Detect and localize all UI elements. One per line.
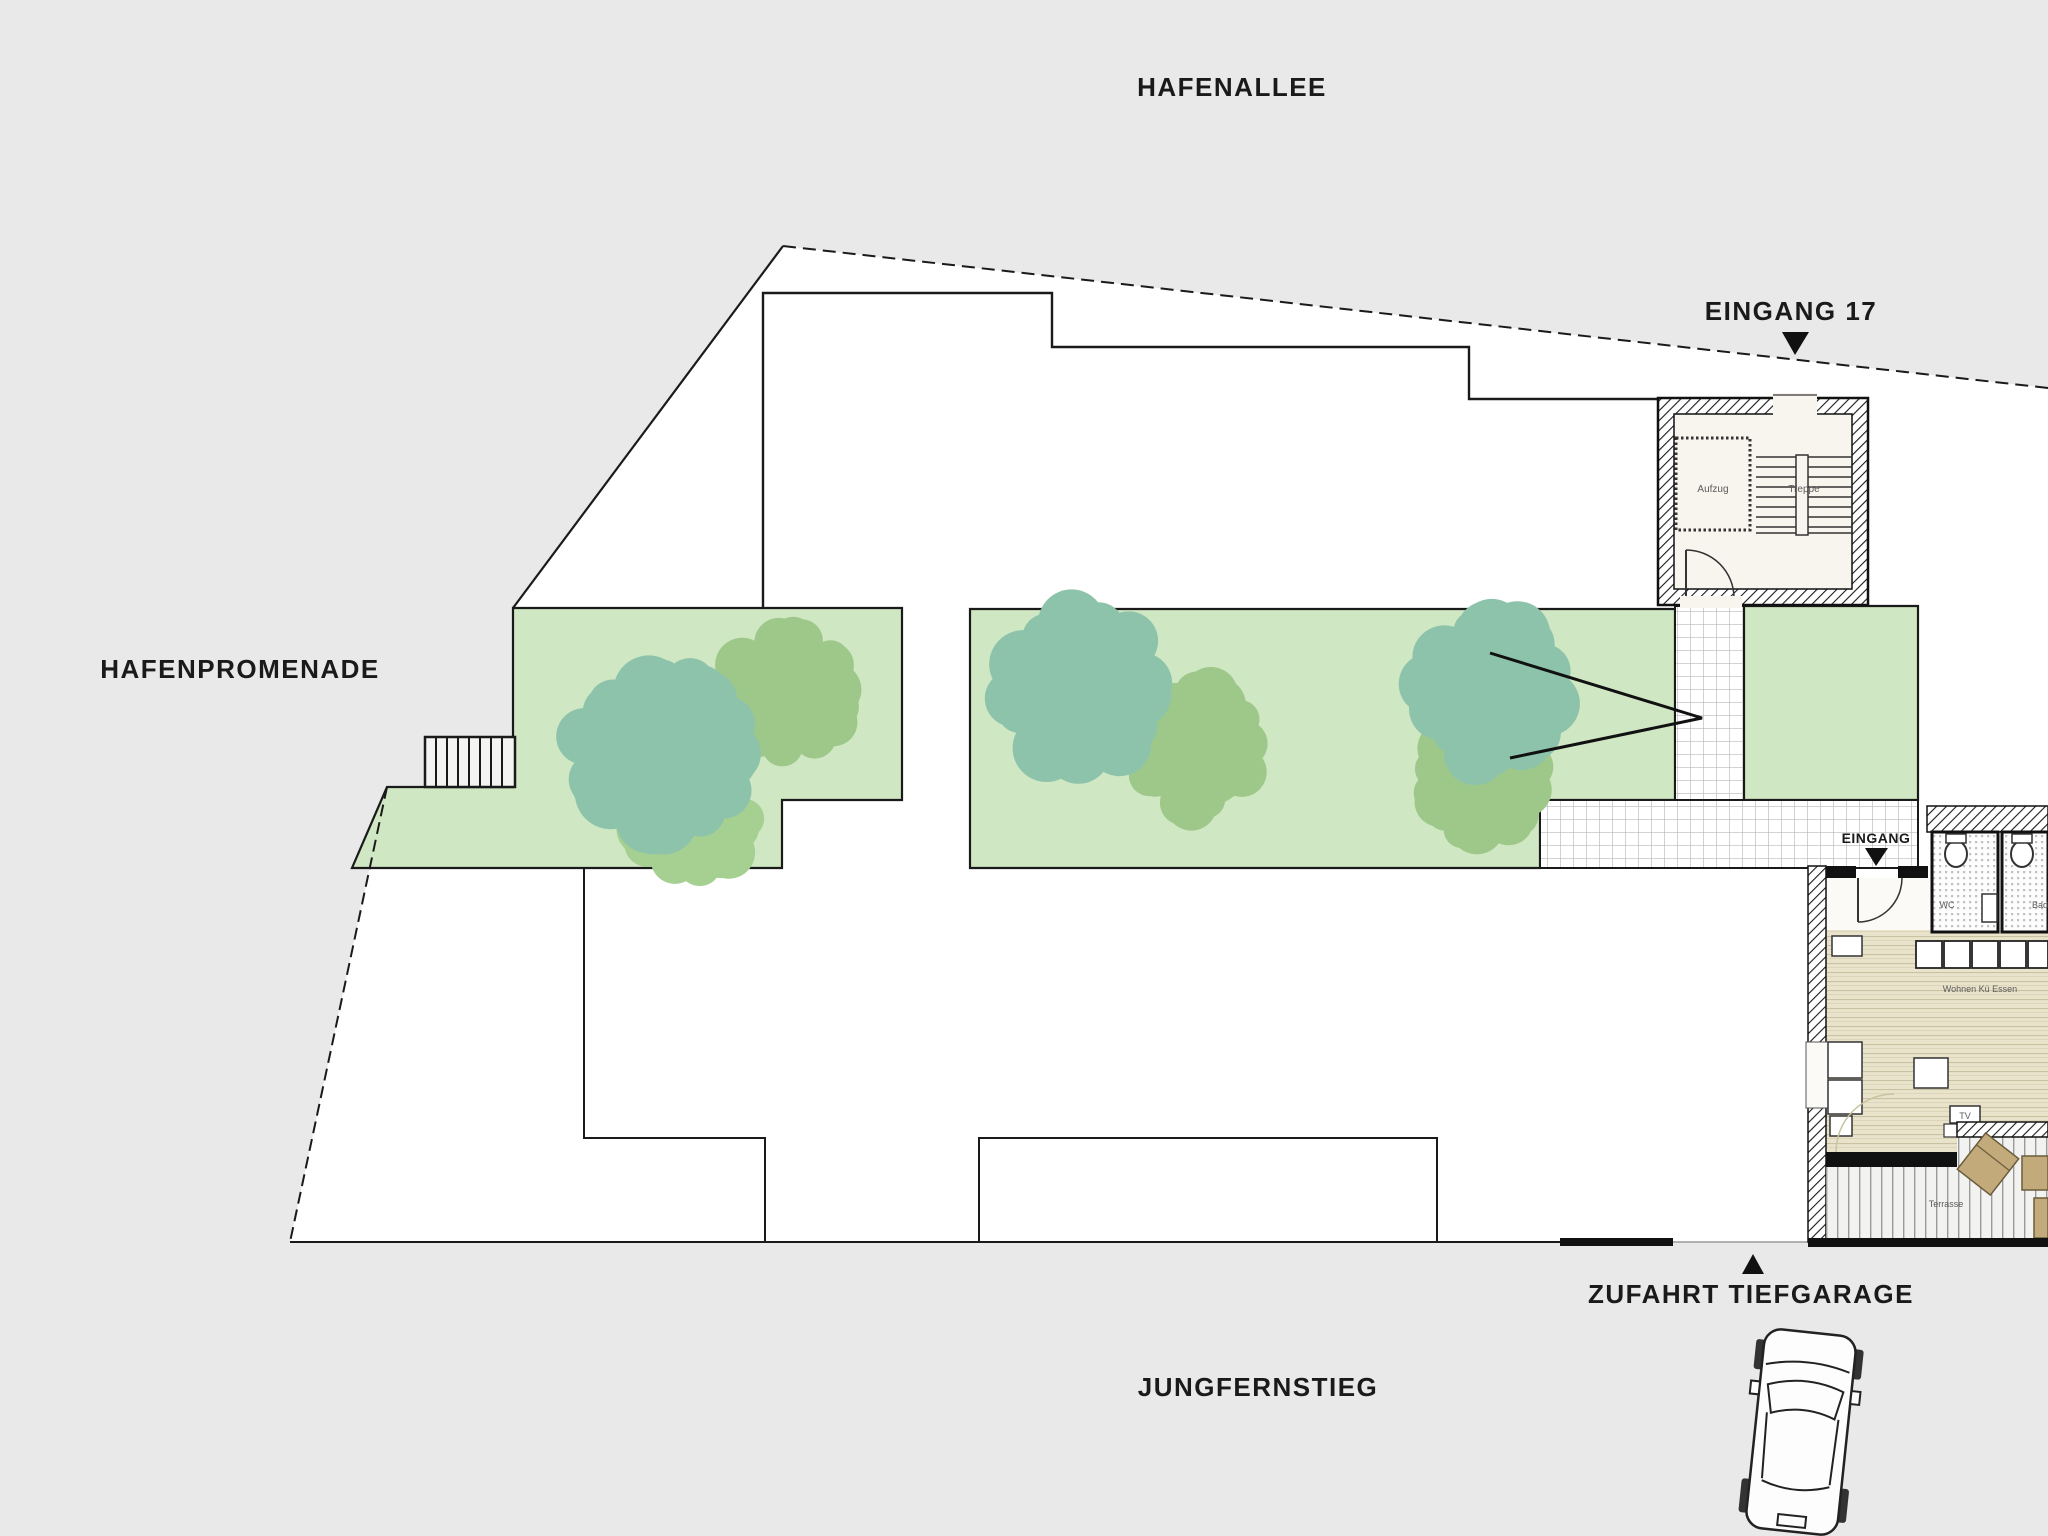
car-body — [1745, 1328, 1857, 1536]
street-label-jungfernstieg: JUNGFERNSTIEG — [1138, 1372, 1379, 1402]
terrace-side-wall — [1957, 1122, 2048, 1137]
bath-toilet — [2011, 841, 2033, 867]
entry-hall-floor — [1826, 878, 1930, 930]
wc-basin — [1982, 894, 1997, 922]
terrace-furniture-1 — [2022, 1156, 2048, 1190]
coffee-table — [1914, 1058, 1948, 1088]
west-wall-window — [1806, 1042, 1828, 1108]
stairwell-south-gap — [1680, 596, 1742, 608]
hall-closet — [1832, 936, 1862, 956]
tv-label: TV — [1959, 1111, 1971, 1121]
terrace-label: Terrasse — [1929, 1199, 1964, 1209]
street-label-hafenpromenade: HAFENPROMENADE — [100, 654, 380, 684]
apartment-unit: WC Bad Wohnen Kü Essen TV — [1806, 806, 2048, 1247]
elevator-label: Aufzug — [1697, 484, 1728, 495]
bath-label: Bad — [2032, 900, 2048, 910]
wc-toilet — [1945, 841, 1967, 867]
kitchen-cabinets — [1916, 941, 2048, 968]
apartment-north-wall — [1927, 806, 2048, 832]
stairs-label: Treppe — [1788, 484, 1820, 495]
garage-wall-segment — [1560, 1238, 1673, 1246]
terrace-wall — [1826, 1152, 1957, 1167]
site-plan-svg: Aufzug Treppe — [0, 0, 2048, 1536]
site-plan: Aufzug Treppe — [0, 0, 2048, 1536]
car-mirror — [1750, 1381, 1760, 1395]
entrance-label-eingang17: EINGANG 17 — [1705, 296, 1878, 326]
stairwell-block: Aufzug Treppe — [1658, 393, 1868, 608]
terrace-furniture-2 — [2034, 1198, 2048, 1238]
stairwell-entry-gap — [1773, 393, 1817, 416]
entrance-label-tiefgarage: ZUFAHRT TIEFGARAGE — [1588, 1279, 1914, 1309]
terrace-south-wall — [1808, 1238, 2048, 1247]
wc-label: WC — [1940, 900, 1955, 910]
car-mirror — [1850, 1391, 1860, 1405]
car — [1736, 1327, 1866, 1536]
promenade-stairs — [425, 737, 515, 787]
living-label: Wohnen Kü Essen — [1943, 984, 2017, 994]
entrance-label-eingang: EINGANG — [1842, 830, 1911, 846]
green-parcel-east — [1744, 606, 1918, 800]
street-label-hafenallee: HAFENALLEE — [1137, 72, 1327, 102]
stair-divider — [1796, 455, 1808, 535]
path-vertical — [1675, 606, 1744, 802]
